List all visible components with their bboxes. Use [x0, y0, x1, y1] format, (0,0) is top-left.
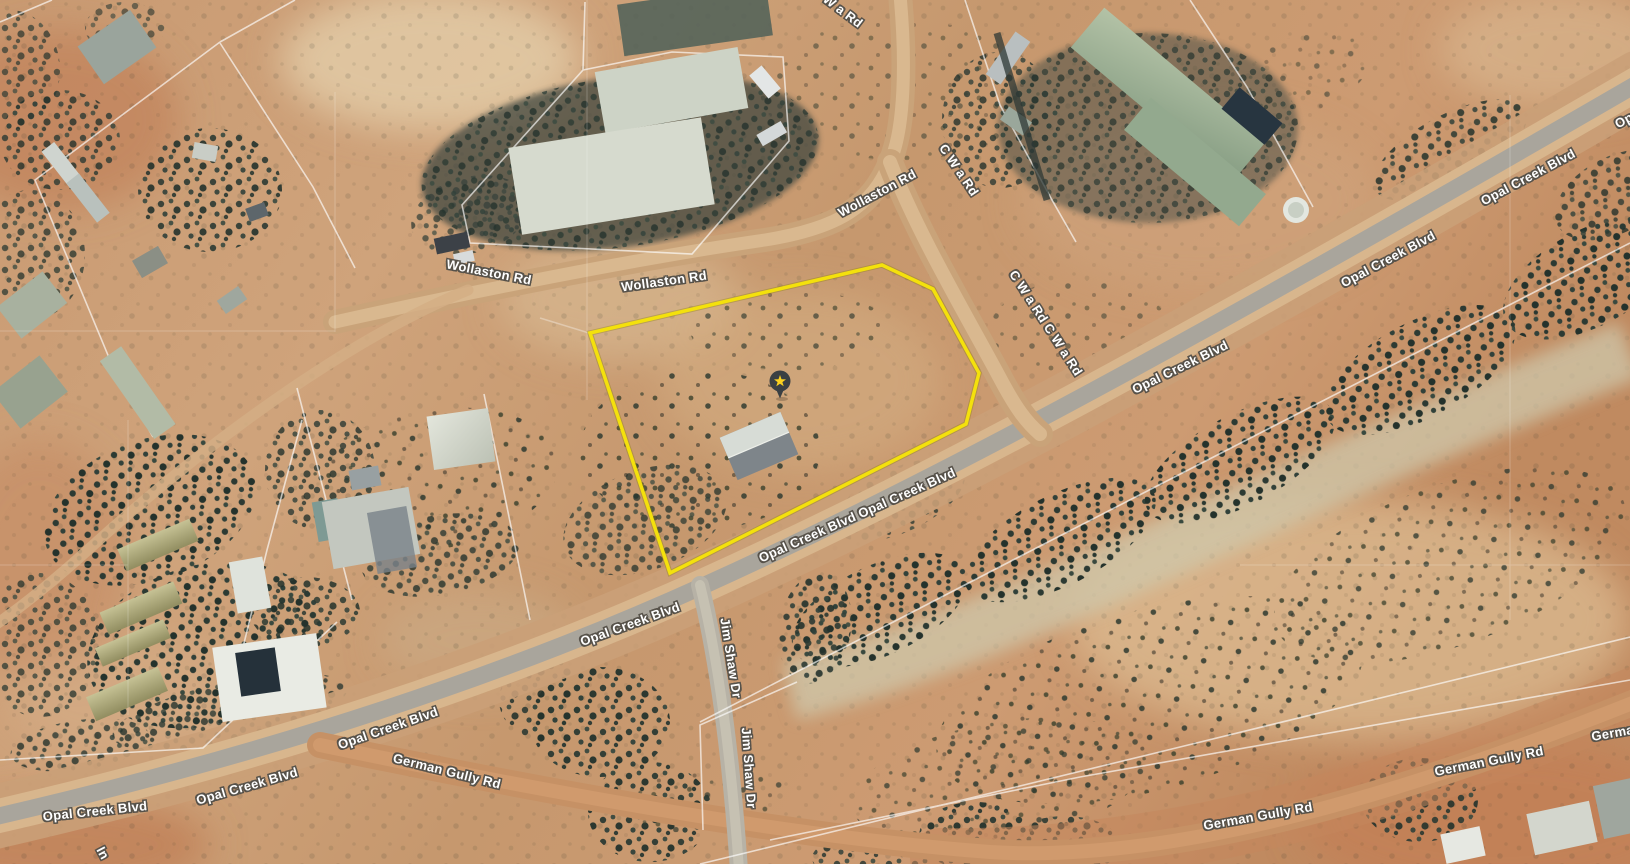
satellite-map[interactable]: W a Rd Wollaston Rd Wollaston Rd Wollast… [0, 0, 1630, 864]
satellite-imagery [0, 0, 1630, 864]
